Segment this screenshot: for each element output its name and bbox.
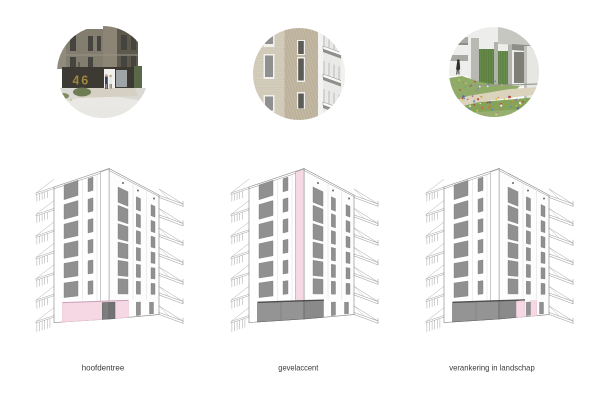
svg-text:verankering in landschap: verankering in landschap xyxy=(449,363,535,373)
svg-text:gevelaccent: gevelaccent xyxy=(278,363,319,373)
svg-text:hoofdentree: hoofdentree xyxy=(82,363,125,373)
svg-text:46: 46 xyxy=(73,74,91,88)
